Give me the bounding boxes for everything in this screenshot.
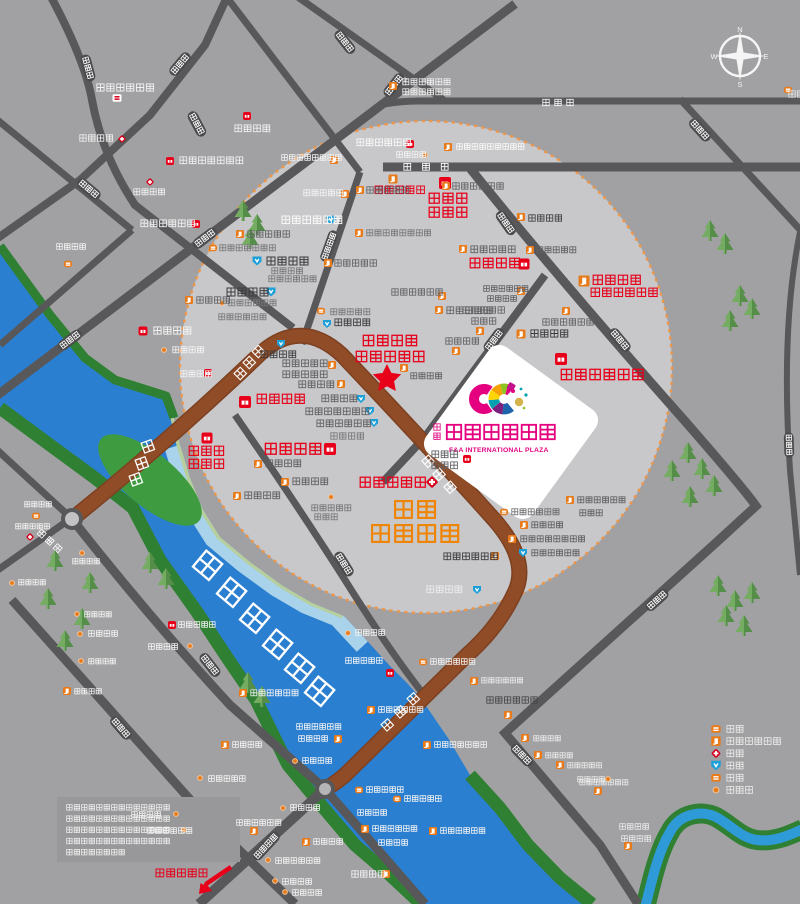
svg-text:W: W xyxy=(710,52,718,61)
svg-text:N: N xyxy=(737,25,742,34)
svg-text:F&A INTERNATIONAL PLAZA: F&A INTERNATIONAL PLAZA xyxy=(449,447,549,454)
svg-text:E: E xyxy=(763,52,768,61)
svg-text:S: S xyxy=(737,80,742,89)
